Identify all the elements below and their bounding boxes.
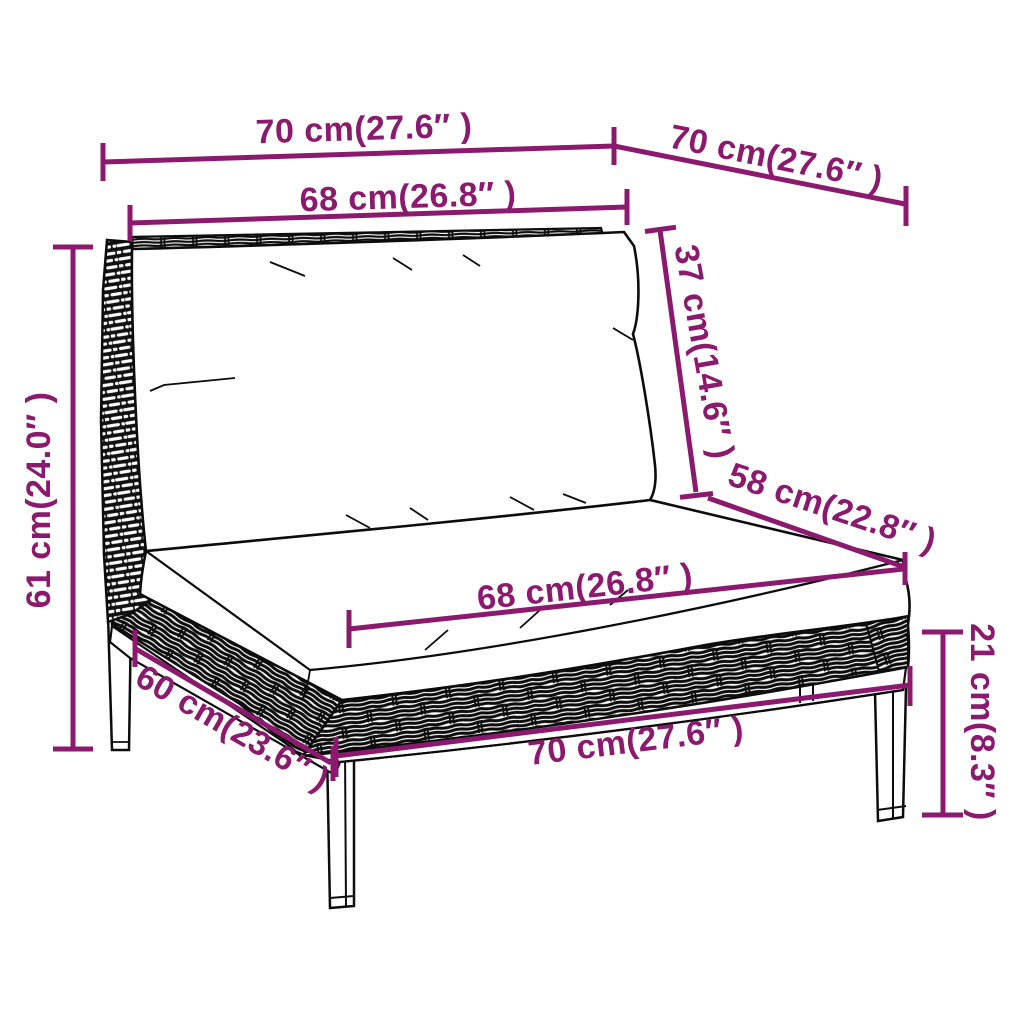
svg-text:68 cm(26.8″ ): 68 cm(26.8″ ) — [299, 175, 517, 220]
svg-text:21 cm(8.3″ ): 21 cm(8.3″ ) — [963, 623, 1001, 820]
svg-text:70 cm(27.6″ ): 70 cm(27.6″ ) — [255, 107, 473, 152]
svg-text:61 cm(24.0″ ): 61 cm(24.0″ ) — [20, 392, 58, 609]
